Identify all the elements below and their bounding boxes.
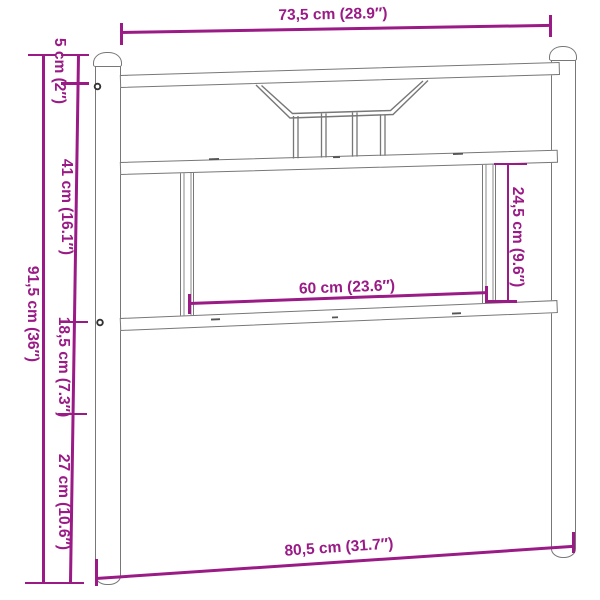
- dimension-label-panel-height: 24,5 cm (9.6″): [508, 167, 526, 307]
- dimension-tick: [55, 582, 84, 585]
- dimension-label-upper-height: 41 cm (16.1″): [57, 137, 75, 277]
- dimension-label-lower-height: 27 cm (10.6″): [54, 432, 72, 572]
- dimension-label-middle-height: 18,5 cm (7.3″): [54, 297, 72, 437]
- dimension-tick: [485, 286, 488, 303]
- dimension-tick: [494, 163, 527, 166]
- dimension-tick: [188, 294, 191, 314]
- headboard-dimension-diagram: 73,5 cm (28.9″) 80,5 cm (31.7″) 91,5 cm …: [0, 0, 600, 600]
- dimension-tick: [95, 559, 98, 586]
- dimension-label-total-height: 91,5 cm (36″): [23, 244, 41, 384]
- dimension-label-top-width: 73,5 cm (28.9″): [233, 4, 433, 25]
- dimension-line-total-height: [42, 54, 45, 583]
- dimension-label-cap-height: 5 cm (2″): [50, 1, 68, 141]
- screw-icon: [95, 84, 101, 90]
- dimension-tick: [549, 15, 552, 37]
- dimension-tick: [120, 23, 123, 45]
- headboard-slats: [294, 113, 386, 159]
- dimension-tick: [572, 532, 575, 553]
- screw-icon: [97, 320, 103, 326]
